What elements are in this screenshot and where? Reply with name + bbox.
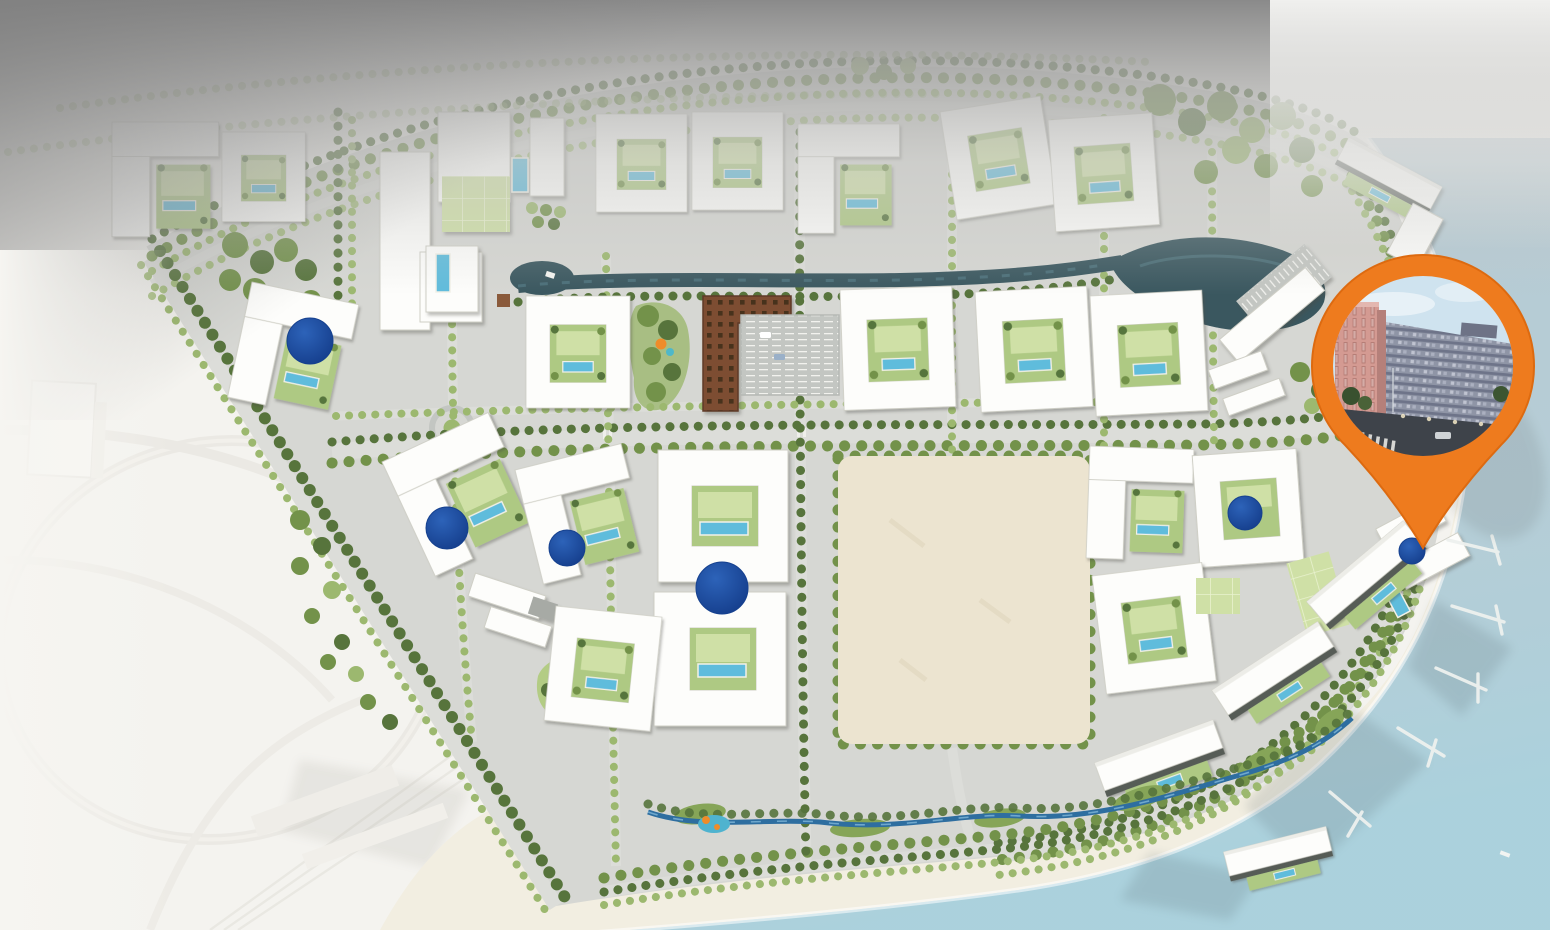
central-plot (838, 456, 1090, 744)
building-cluster (1090, 290, 1208, 416)
car-icon (1435, 432, 1451, 439)
building-cluster (1086, 446, 1194, 562)
building-cluster (975, 286, 1093, 412)
dome-roof (696, 562, 748, 614)
parking-lot (741, 315, 839, 395)
building-cluster (544, 606, 662, 731)
dome-roof (549, 530, 585, 566)
dome-roof (1228, 496, 1262, 530)
masterplan-map (0, 0, 1550, 930)
building-cluster (840, 286, 956, 410)
masterplan-svg (0, 0, 1550, 930)
dome-roof (426, 507, 468, 549)
